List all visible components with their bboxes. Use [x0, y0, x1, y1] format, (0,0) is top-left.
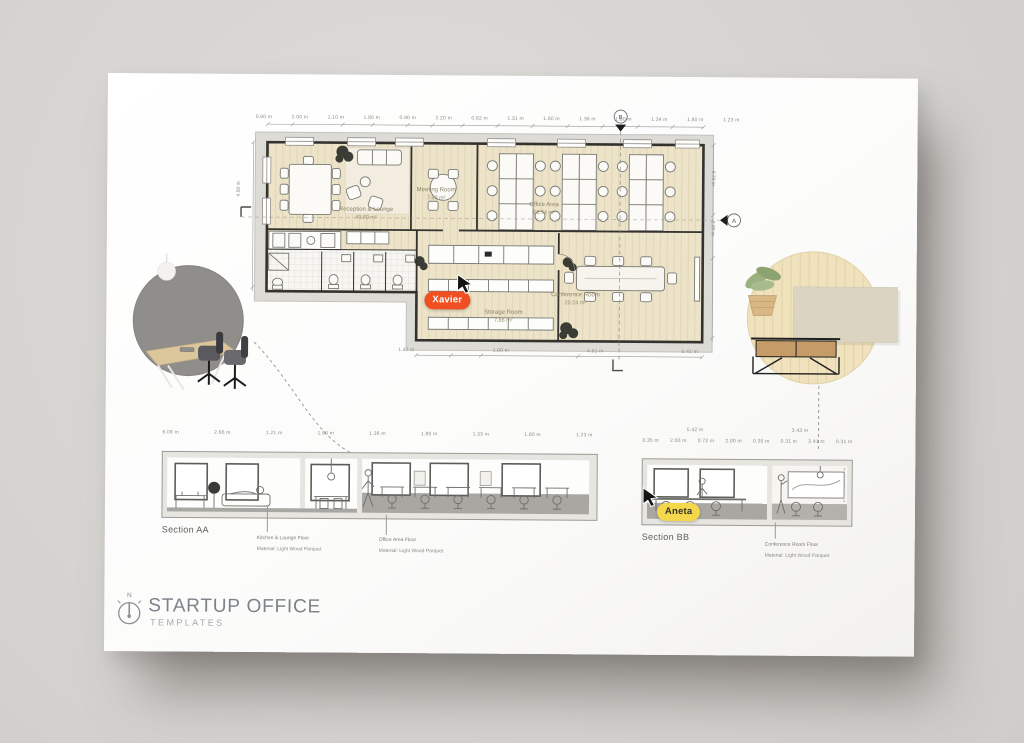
north-compass-icon: N [112, 589, 146, 629]
dimension-label: 2.00 m [670, 438, 687, 444]
room-label-conference: Conference Room 20.24 m² [540, 292, 610, 307]
dimension-label: 0.62 m [471, 116, 488, 122]
plan-dim-right-2: 2.00 m [710, 221, 716, 236]
pendant-lamp-icon [158, 262, 176, 280]
dimension-label: 0.35 m [753, 439, 770, 445]
plan-dim-left: 4.50 m [236, 181, 242, 196]
desk-background: { "poster": { "title": "STARTUP OFFICE",… [0, 0, 1024, 743]
dimension-label: 5.42 m [687, 427, 704, 433]
dimension-label: 0.35 m [642, 438, 659, 444]
paint-swatch [793, 287, 897, 343]
annotation-leader [267, 506, 268, 532]
section-bb-dims-overall: 5.42 m3.43 m [643, 427, 853, 434]
dimension-label: 1.23 m [576, 432, 593, 438]
dimension-label: 2.20 m [435, 115, 452, 121]
cursor-name-label: Aneta [657, 503, 701, 521]
dimension-label: 1.33 m [473, 432, 490, 438]
dimension-label: 4.51 m [587, 348, 604, 354]
detail-material-board[interactable] [736, 247, 907, 383]
cursor-xavier: Xavier [424, 289, 470, 309]
section-bb-dims-detail: 0.35 m2.00 m0.72 m2.00 m0.35 m0.31 m2.41… [642, 438, 852, 445]
poster-sheet: B A 0.60 m2.00 m1.10 m1.80 m0.90 m2.20 m… [104, 73, 918, 657]
section-marker-a: A [732, 219, 736, 225]
cursor-aneta: Aneta [644, 489, 701, 521]
dimension-label: 1.80 m [318, 430, 335, 436]
dimension-label: 0.31 m [781, 439, 798, 445]
dimension-label: 1.36 m [579, 116, 596, 122]
detail-photo-meeting-table[interactable] [128, 253, 254, 392]
dimension-label: 0.31 m [836, 439, 853, 445]
poster-title: STARTUP OFFICE [148, 595, 321, 618]
dimension-label: 1.23 m [723, 117, 740, 123]
dimension-label: 1.31 m [507, 116, 524, 122]
section-aa-annotation-2: Office Area Floor Material: Light Wood P… [379, 537, 453, 555]
section-aa-title: Section AA [162, 524, 209, 534]
dimension-label: 5.41 m [682, 349, 699, 355]
dimension-label: 2.41 m [808, 439, 825, 445]
dimension-label: 2.00 m [725, 438, 742, 444]
room-label-storage: Storage Room 7.86 m² [468, 310, 538, 325]
dimension-label: 1.80 m [421, 431, 438, 437]
section-aa-annotation-1: Kitchen & Lounge Floor Material: Light W… [257, 535, 331, 553]
dimension-label: 1.10 m [328, 115, 345, 121]
dimension-label: 1.34 m [651, 117, 668, 123]
dimension-label: 1.80 m [364, 115, 381, 121]
dimension-label: 6.08 m [162, 429, 179, 435]
room-label-meeting: Meeting Room 7.80 m² [401, 187, 471, 202]
annotation-leader [386, 515, 387, 535]
poster-subtitle: TEMPLATES [150, 617, 225, 628]
dimension-label: 0.90 m [399, 115, 416, 121]
plan-dim-right-1: 0.70 m [710, 171, 716, 186]
dimension-label: 1.00 m [493, 348, 510, 354]
section-bb-annotation-1: Conference Room Floor Material: Light Wo… [765, 542, 839, 560]
section-bb-title: Section BB [642, 532, 690, 542]
dimension-label: 1.80 m [524, 432, 541, 438]
dimension-label: 1.36 m [369, 431, 386, 437]
dimension-label: 1.21 m [266, 430, 283, 436]
annotation-leader [775, 523, 776, 539]
dimension-label: 3.43 m [792, 428, 809, 434]
cursor-pointer-icon [456, 273, 474, 293]
cursor-name-label: Xavier [424, 291, 470, 309]
room-label-office: Office Area 66.74 m² [509, 202, 579, 217]
section-aa-drawing[interactable] [162, 439, 598, 530]
section-aa-dims: 6.08 m2.66 m1.21 m1.80 m1.36 m1.80 m1.33… [162, 429, 592, 438]
dimension-label: 2.66 m [214, 430, 231, 436]
dimension-label: 0.60 m [256, 114, 273, 120]
dimension-label: 1.80 m [543, 116, 560, 122]
cursor-pointer-icon [642, 487, 660, 507]
dimension-label: 2.00 m [292, 114, 309, 120]
dimension-label: 1.80 m [687, 117, 704, 123]
dimension-label: 1.80 m [615, 117, 632, 123]
dimension-label: 0.72 m [698, 438, 715, 444]
north-letter: N [127, 592, 132, 599]
room-label-reception: Reception & Lounge 49.80 m² [331, 207, 401, 222]
dimension-label: 1.47 m [398, 347, 415, 353]
